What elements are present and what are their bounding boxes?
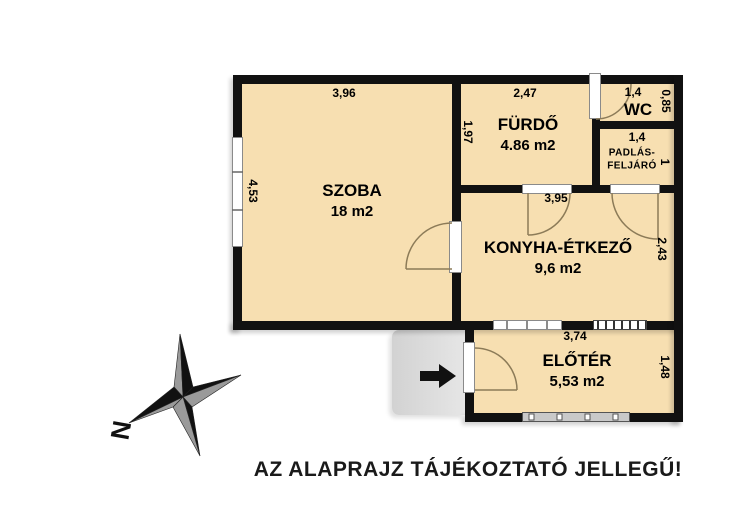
dim-konyha-door: 3,95 [544, 191, 567, 205]
floor-plan: N SZOBA 18 m2 FÜRDŐ 4.86 m2 WC PADLÁS- F… [0, 0, 729, 510]
dim-szoba-top: 3,96 [332, 86, 355, 100]
szoba-door-opening [449, 221, 462, 273]
konyha-window-left [493, 320, 562, 330]
room-name: WC [624, 99, 652, 121]
dim-wc-top: 1,4 [625, 85, 642, 99]
wall-top [233, 75, 683, 84]
dim-eloter-right: 1,48 [658, 355, 672, 378]
room-area: 9,6 m2 [484, 259, 632, 279]
entrance-door-opening [463, 342, 475, 393]
eloter-window [522, 412, 630, 422]
room-label-konyha: KONYHA-ÉTKEZŐ 9,6 m2 [484, 237, 632, 279]
room-name: FÜRDŐ [498, 114, 558, 136]
room-label-furdo: FÜRDŐ 4.86 m2 [498, 114, 558, 156]
dim-padlas-right: 1 [658, 159, 672, 166]
konyha-window-right [593, 320, 647, 330]
padlas-door-opening [610, 184, 660, 194]
dim-padlas-top: 1,4 [629, 130, 646, 144]
room-area: 5,53 m2 [543, 372, 612, 392]
szoba-window [232, 137, 243, 247]
entrance-porch [392, 330, 465, 415]
dim-szoba-left: 4,53 [246, 179, 260, 202]
room-name: ELŐTÉR [543, 350, 612, 372]
room-label-padlas: PADLÁS- FELJÁRÓ [607, 148, 656, 173]
wall-szoba-divider [452, 84, 461, 321]
room-area: 4.86 m2 [498, 136, 558, 156]
room-name: KONYHA-ÉTKEZŐ [484, 237, 632, 259]
dim-furdo-top: 2,47 [513, 86, 536, 100]
room-name: SZOBA [322, 180, 382, 202]
room-area: 18 m2 [322, 202, 382, 222]
dim-eloter-top: 3,74 [563, 329, 586, 343]
disclaimer-caption: AZ ALAPRAJZ TÁJÉKOZTATÓ JELLEGŰ! [254, 458, 683, 482]
dim-wc-right: 0,85 [659, 89, 673, 112]
room-name-line2: FELJÁRÓ [607, 160, 656, 173]
dim-konyha-right: 2,43 [655, 237, 669, 260]
wall-right [674, 75, 683, 422]
dim-furdo-left: 1,97 [461, 120, 475, 143]
wall-wc-padlas [592, 121, 674, 129]
room-label-szoba: SZOBA 18 m2 [322, 180, 382, 222]
room-name-line1: PADLÁS- [607, 148, 656, 161]
wc-door-leaf [589, 73, 601, 119]
room-label-eloter: ELŐTÉR 5,53 m2 [543, 350, 612, 392]
compass-star-icon [129, 334, 241, 456]
compass-north-label: N [105, 418, 138, 442]
room-label-wc: WC [624, 99, 652, 121]
